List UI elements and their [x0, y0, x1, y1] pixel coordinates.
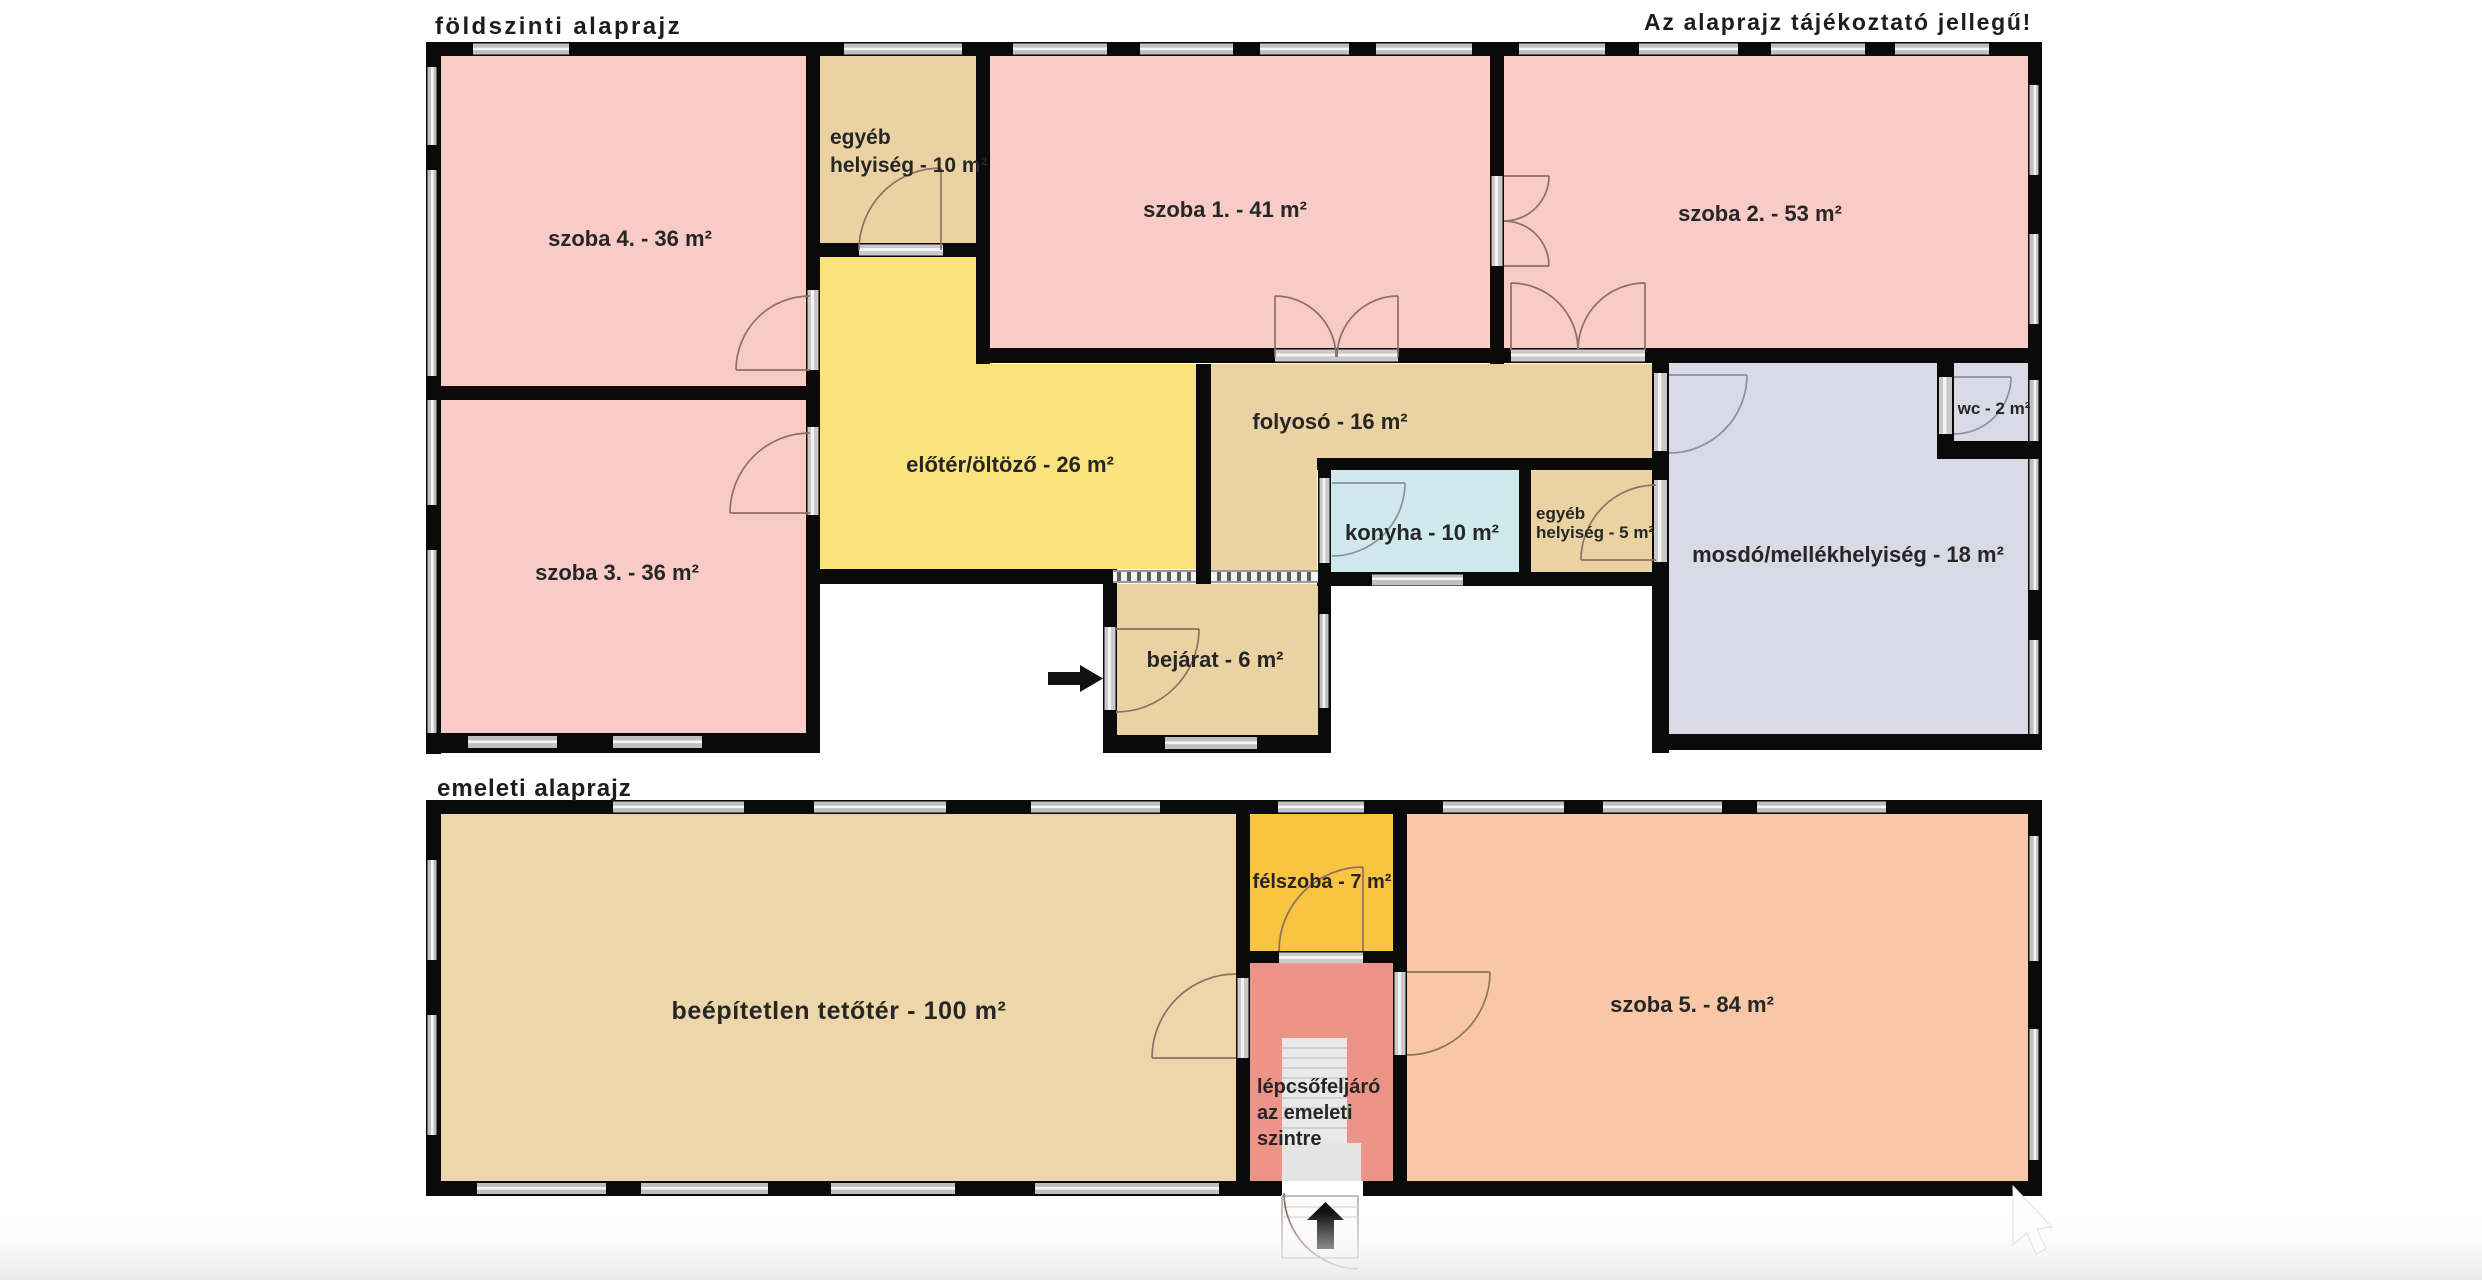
svg-text:szoba 2. - 53 m²: szoba 2. - 53 m²: [1678, 201, 1842, 226]
svg-text:egyéb: egyéb: [1536, 504, 1585, 523]
svg-text:mosdó/mellékhelyiség - 18 m²: mosdó/mellékhelyiség - 18 m²: [1692, 542, 2004, 567]
svg-text:bejárat - 6 m²: bejárat - 6 m²: [1147, 647, 1284, 672]
svg-text:emeleti alaprajz: emeleti alaprajz: [437, 775, 632, 802]
svg-text:konyha - 10 m²: konyha - 10 m²: [1345, 520, 1499, 545]
svg-text:szoba 1. - 41 m²: szoba 1. - 41 m²: [1143, 197, 1307, 222]
svg-text:szoba 3. - 36 m²: szoba 3. - 36 m²: [535, 560, 699, 585]
svg-text:egyéb: egyéb: [830, 126, 891, 149]
svg-text:szoba 5. - 84 m²: szoba 5. - 84 m²: [1610, 992, 1774, 1017]
svg-text:félszoba - 7 m²: félszoba - 7 m²: [1253, 871, 1392, 893]
svg-text:lépcsőfeljáró: lépcsőfeljáró: [1257, 1076, 1380, 1098]
svg-text:szintre: szintre: [1257, 1128, 1321, 1150]
svg-text:beépítetlen tetőtér - 100 m²: beépítetlen tetőtér - 100 m²: [672, 997, 1007, 1025]
svg-text:helyiség - 10 m²: helyiség - 10 m²: [830, 154, 988, 177]
svg-text:folyosó - 16 m²: folyosó - 16 m²: [1252, 409, 1407, 434]
svg-text:wc - 2 m²: wc - 2 m²: [1957, 399, 2031, 418]
svg-text:szoba 4. - 36 m²: szoba 4. - 36 m²: [548, 226, 712, 251]
svg-text:Az alaprajz tájékoztató jelleg: Az alaprajz tájékoztató jellegű!: [1644, 9, 2032, 35]
svg-text:az emeleti: az emeleti: [1257, 1102, 1353, 1124]
svg-text:helyiség - 5 m²: helyiség - 5 m²: [1536, 523, 1654, 542]
svg-text:földszinti alaprajz: földszinti alaprajz: [435, 13, 682, 40]
svg-text:előtér/öltöző - 26 m²: előtér/öltöző - 26 m²: [906, 452, 1114, 477]
